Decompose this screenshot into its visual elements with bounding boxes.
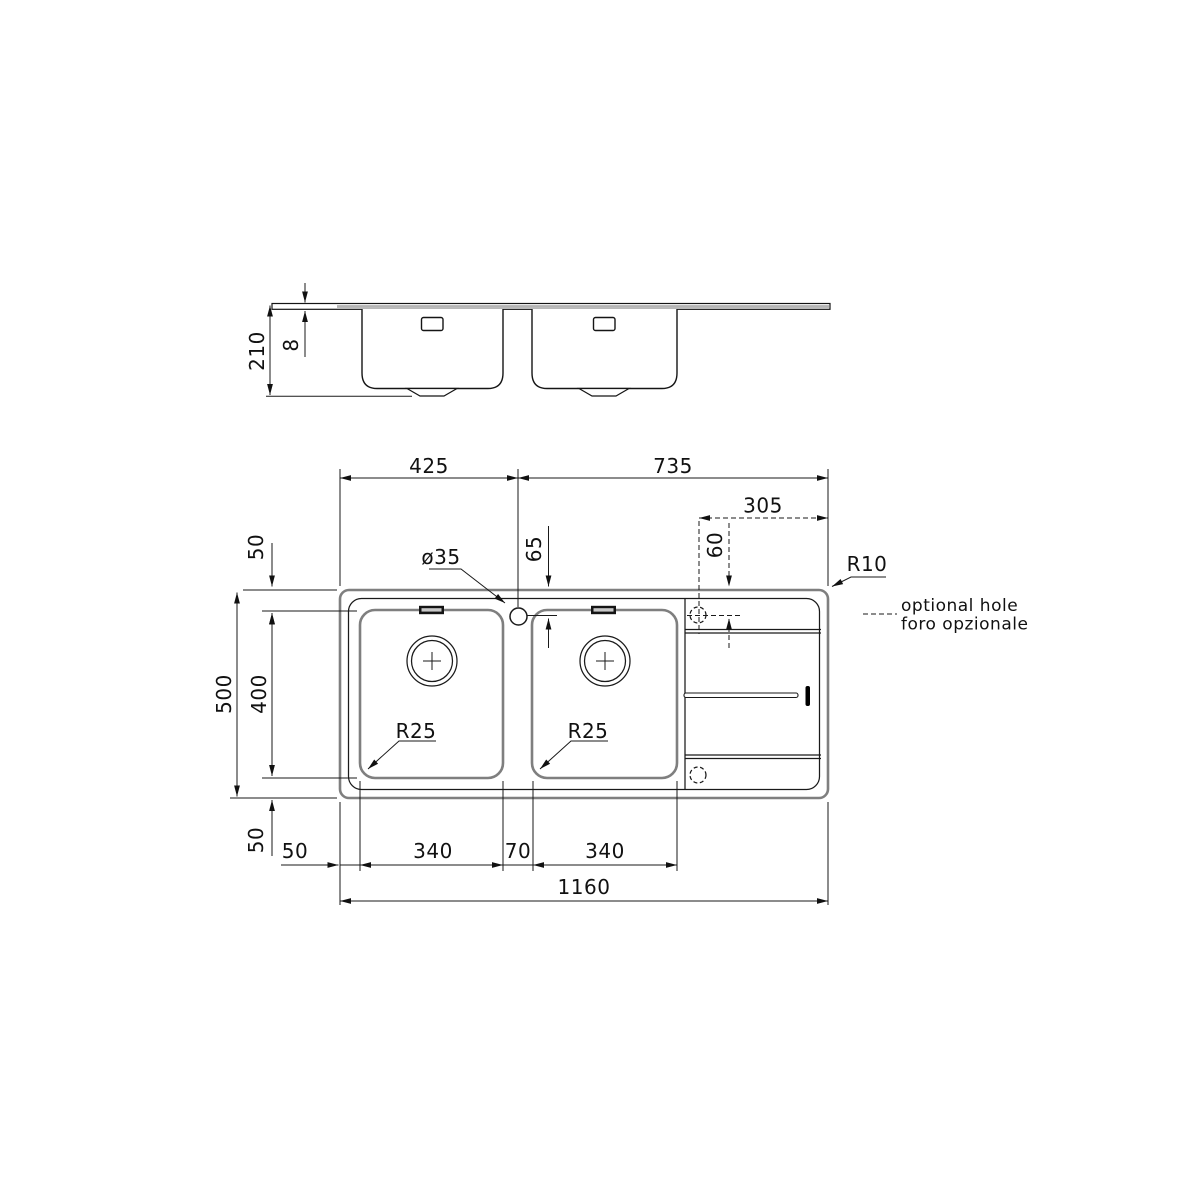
- dim-70-label: 70: [505, 839, 531, 863]
- dim-210-label: 210: [245, 331, 269, 371]
- radius-label-bowl-right: R25: [568, 719, 609, 743]
- radius-label-bowl-left: R25: [396, 719, 437, 743]
- tap-hole-label: ø35: [421, 545, 460, 569]
- section-drain-left: [407, 389, 457, 397]
- section-overflow-left: [422, 318, 444, 331]
- bowl-left: [360, 610, 503, 778]
- dim-425-label: 425: [409, 454, 449, 478]
- drainer-groove-end-mark: [806, 686, 811, 706]
- dim-1160-label: 1160: [558, 875, 611, 899]
- section-view: 210 8: [245, 283, 830, 396]
- dim-50top-label: 50: [244, 534, 268, 560]
- dim-65-label: 65: [522, 536, 546, 562]
- legend: optional hole foro opzionale: [863, 596, 1028, 635]
- dim-500-label: 500: [212, 674, 236, 714]
- dim-305-label: 305: [743, 494, 783, 518]
- drainer-groove: [684, 693, 798, 698]
- dim-50bl-label: 50: [244, 827, 268, 853]
- overflow-slot-right: [591, 606, 616, 614]
- tap-hole: [510, 608, 527, 625]
- plan-structure: [340, 590, 828, 798]
- technical-drawing-canvas: 210 8: [0, 0, 1200, 1200]
- dim-60-label: 60: [703, 532, 727, 558]
- section-flange-gray-fill: [337, 305, 829, 308]
- section-overflow-right: [594, 318, 616, 331]
- dim-8-label: 8: [279, 338, 303, 351]
- dim-400-label: 400: [247, 674, 271, 714]
- bowl-right: [532, 610, 677, 778]
- legend-line2: foro opzionale: [901, 615, 1028, 635]
- legend-line1: optional hole: [901, 596, 1018, 616]
- radius-leader-corner: [832, 577, 886, 587]
- dim-50b-label: 50: [282, 839, 308, 863]
- dim-340b-label: 340: [585, 839, 625, 863]
- dim-735-label: 735: [653, 454, 693, 478]
- sink-technical-drawing: 210 8: [0, 0, 1200, 1200]
- section-drain-right: [579, 389, 629, 397]
- radius-label-corner: R10: [847, 552, 888, 576]
- plan-view: 425 735 305 60 65 ø35 50: [212, 454, 887, 905]
- overflow-slot-left: [419, 606, 444, 614]
- dim-340a-label: 340: [413, 839, 453, 863]
